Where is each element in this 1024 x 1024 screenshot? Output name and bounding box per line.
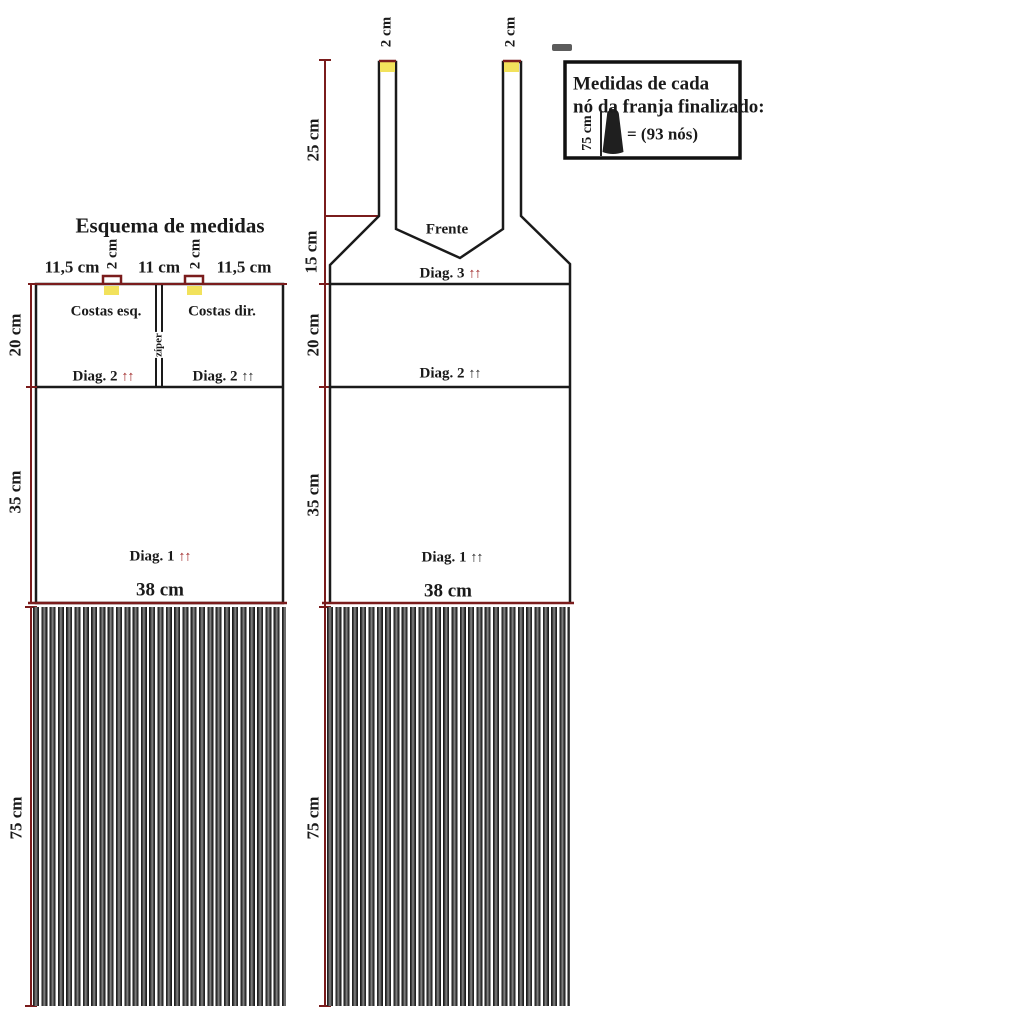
front-neckline-outline [330, 62, 570, 284]
back-bottom-width: 38 cm [136, 581, 184, 600]
front-left-strap-tip [380, 62, 395, 72]
up-arrows-icon: ↑↑ [122, 370, 134, 385]
zipper-label: zíper [154, 332, 165, 358]
back-diag2-left-label: Diag. 2↑↑ [73, 370, 134, 385]
up-arrows-icon: ↑↑ [469, 367, 481, 382]
front-diag2-label: Diag. 2↑↑ [420, 367, 481, 382]
pattern-diagram: Esquema de medidas 11,5 cm 2 cm 11 cm 2 … [0, 0, 1024, 1024]
up-arrows-icon: ↑↑ [469, 267, 481, 282]
front-height-35cm: 35 cm [305, 474, 322, 517]
front-height-15cm: 15 cm [303, 231, 320, 274]
back-height-20cm: 20 cm [7, 314, 24, 357]
back-left-tab-highlight [104, 286, 119, 295]
back-left-panel-label: Costas esq. [71, 305, 142, 320]
back-measure-2cm-left: 2 cm [106, 239, 121, 269]
front-diag1-label: Diag. 1↑↑ [422, 551, 483, 566]
up-arrows-icon: ↑↑ [471, 551, 483, 566]
back-fringe [33, 607, 286, 1006]
back-diag2-right-label: Diag. 2↑↑ [193, 370, 254, 385]
back-height-35cm: 35 cm [7, 471, 24, 514]
ink-smudge [552, 44, 572, 51]
front-diag3-label: Diag. 3↑↑ [420, 267, 481, 282]
back-right-tab-mark [185, 276, 203, 285]
front-strap-left-2cm: 2 cm [380, 17, 395, 47]
back-left-tab-mark [103, 276, 121, 285]
front-piece-label: Frente [426, 223, 468, 238]
up-arrows-icon: ↑↑ [179, 550, 191, 565]
back-right-panel-label: Costas dir. [188, 305, 256, 320]
front-bottom-width: 38 cm [424, 582, 472, 601]
legend-knot-count: = (93 nós) [627, 126, 698, 143]
back-measure-11: 11 cm [138, 259, 180, 276]
front-strap-right-2cm: 2 cm [504, 17, 519, 47]
up-arrows-icon: ↑↑ [242, 370, 254, 385]
front-right-strap-tip [504, 62, 519, 72]
back-measure-2cm-right: 2 cm [189, 239, 204, 269]
legend-knot-height: 75 cm [581, 115, 595, 150]
front-height-25cm: 25 cm [305, 119, 322, 162]
back-measure-11-5-right: 11,5 cm [217, 259, 272, 276]
back-diag1-label: Diag. 1↑↑ [130, 550, 191, 565]
front-height-20cm: 20 cm [305, 314, 322, 357]
legend-line2: nó da franja finalizado: [573, 98, 765, 117]
front-fringe-75cm: 75 cm [305, 797, 322, 840]
back-right-tab-highlight [187, 286, 202, 295]
front-fringe [327, 607, 570, 1006]
legend-line1: Medidas de cada [573, 75, 709, 94]
back-measure-11-5-left: 11,5 cm [45, 259, 100, 276]
back-fringe-75cm: 75 cm [8, 797, 25, 840]
page-title: Esquema de medidas [75, 216, 264, 237]
